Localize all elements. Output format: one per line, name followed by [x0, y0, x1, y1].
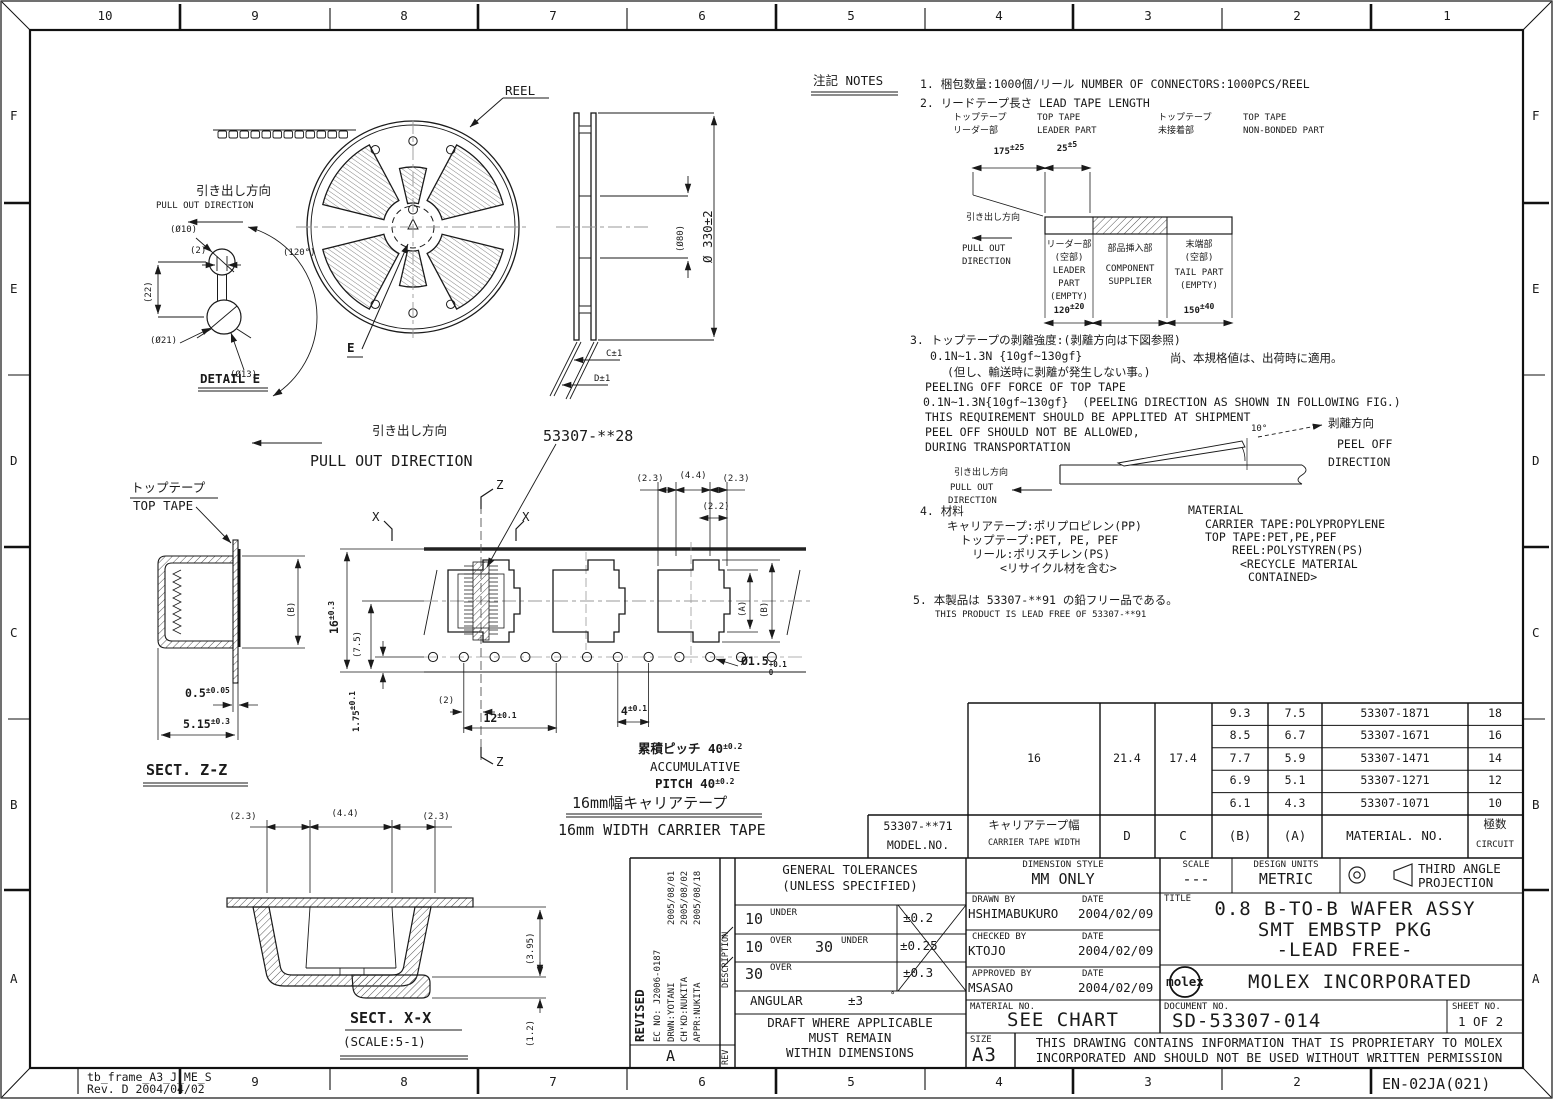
note2-toptape-en: TOP TAPE: [1037, 113, 1080, 123]
document-no-value: SD-53307-014: [1172, 1011, 1321, 1033]
frame-code: EN-02JA(021): [1382, 1076, 1490, 1093]
tail-col-jp2: (空部): [1185, 253, 1214, 263]
dim-16: 16±0.3: [328, 601, 341, 634]
proprietary-line1: THIS DRAWING CONTAINS INFORMATION THAT I…: [1036, 1036, 1503, 1050]
pull-out: PULL OUT: [962, 244, 1005, 254]
dim-2-3: (2.3): [422, 812, 449, 822]
leader-col-en: LEADER: [1053, 266, 1086, 276]
note-4-e3: REEL:POLYSTYREN(PS): [1232, 544, 1364, 557]
pull-direction-jp: 引き出し方向: [196, 184, 271, 198]
tol-r3-num: 30: [745, 966, 763, 983]
grid-col-label: 5: [847, 1075, 855, 1089]
table-cell-b: 6.9: [1230, 774, 1251, 787]
top-tape-en: TOP TAPE: [133, 499, 193, 513]
dim-1-75: 1.75±0.1: [352, 691, 362, 732]
note-3g: THIS REQUIREMENT SHOULD BE APPLITED AT S…: [925, 411, 1250, 424]
tape-pockets-strip: [218, 131, 348, 138]
dim-style-label: DIMENSION STYLE: [1022, 860, 1103, 870]
grid-col-label: 8: [400, 1075, 408, 1089]
tol-draft3: WITHIN DIMENSIONS: [786, 1046, 914, 1060]
note2-toptape2-en: TOP TAPE: [1243, 113, 1286, 123]
dim-22: (22): [144, 281, 154, 303]
dim-1-2: (1.2): [526, 1020, 536, 1047]
checked-by-value: KTOJO: [968, 944, 1006, 958]
peel-direction-jp: 剥離方向: [1328, 417, 1374, 430]
tol-r2-num1: 10: [745, 939, 763, 956]
leader-col-en3: (EMPTY): [1050, 292, 1088, 302]
revision-date: 2005/08/01: [667, 871, 677, 925]
direction: DIRECTION: [962, 257, 1011, 267]
note-4: 4. 材料: [920, 505, 964, 518]
dim-330: Ø 330±2: [701, 210, 715, 263]
table-cell-a: 7.5: [1285, 707, 1306, 720]
note2-leader-en: LEADER PART: [1037, 126, 1097, 136]
table-cell-a: 6.7: [1285, 729, 1306, 742]
dim-80: (Ø80): [676, 225, 686, 252]
sect-zz-view: [130, 498, 305, 786]
grid-col-label: 2: [1293, 1075, 1301, 1089]
note-3d: (但し、輸送時に剥離が発生しない事。): [947, 366, 1151, 379]
table-cell-b: 6.1: [1230, 797, 1251, 810]
part-number-callout: 53307-**28: [543, 428, 633, 445]
grid-row-label: D: [10, 454, 18, 468]
dim-d1: D±1: [594, 374, 610, 384]
table-cell-d: 21.4: [1113, 752, 1141, 765]
pull-direction-jp: 引き出し方向: [372, 424, 447, 438]
note2-toptape-jp: トップテープ: [953, 113, 1006, 123]
grid-col-label: 4: [995, 1075, 1003, 1089]
revision-drwn: DRWN:YOTANI: [667, 982, 677, 1042]
table-cell-circuit: 10: [1488, 797, 1502, 810]
dim-style-value: MM ONLY: [1031, 871, 1094, 888]
table-cell-a: 4.3: [1285, 797, 1306, 810]
checked-date: 2004/02/09: [1078, 944, 1153, 958]
pull-out: PULL OUT: [950, 483, 993, 493]
table-cell-circuit: 18: [1488, 707, 1502, 720]
reel-label: REEL: [505, 84, 535, 98]
note-4-m3: リール:ポリスチレン(PS): [972, 548, 1110, 561]
dim-d21: (Ø21): [150, 336, 177, 346]
table-cell-b: 7.7: [1230, 752, 1251, 765]
grid-col-label: 6: [698, 9, 706, 23]
grid-row-label: F: [1532, 109, 1540, 123]
note2-nonbonded-jp: 未接着部: [1158, 126, 1194, 136]
dim-12: 12±0.1: [483, 712, 516, 725]
accumulative-en2: PITCH 40±0.2: [655, 777, 734, 791]
tolerance-title1: GENERAL TOLERANCES: [782, 863, 917, 877]
accumulative-pitch-jp: 累積ピッチ 40±0.2: [638, 742, 742, 756]
detail-e-title: DETAIL E: [200, 372, 260, 386]
dim-c1: C±1: [606, 349, 622, 359]
tail-col-jp: 末端部: [1185, 240, 1212, 250]
grid-col-label: 8: [400, 9, 408, 23]
table-header-width-en: CARRIER TAPE WIDTH: [988, 839, 1080, 849]
scale-label: SCALE: [1182, 860, 1209, 870]
grid-row-label: C: [1532, 626, 1540, 640]
table-header-a: (A): [1284, 829, 1307, 843]
grid-row-label: C: [10, 626, 18, 640]
note-4-e5: CONTAINED>: [1248, 571, 1317, 584]
approved-by-value: MSASAO: [968, 981, 1013, 995]
leader-col-jp2: (空部): [1055, 253, 1084, 263]
dim-2: (2): [438, 696, 454, 706]
table-cell-b: 9.3: [1230, 707, 1251, 720]
sheet-no-label: SHEET NO.: [1452, 1002, 1501, 1012]
note-3e: PEELING OFF FORCE OF TOP TAPE: [925, 381, 1126, 394]
revision-ec-no: EC NO: J2006-0187: [653, 950, 663, 1042]
dim-5-15: 5.15±0.3: [183, 718, 230, 731]
sect-xx-title: SECT. X-X: [350, 1010, 431, 1027]
section-e-label: E: [347, 341, 355, 355]
grid-col-label: 1: [1443, 9, 1451, 23]
molex-logo-text: molex: [1166, 975, 1204, 989]
tol-r2-cond1: OVER: [770, 936, 792, 946]
dim-2-2: (2.2): [702, 502, 729, 512]
revision-appr: APPR:NUKITA: [693, 982, 703, 1042]
grid-row-label: E: [10, 282, 18, 296]
dim-A: (A): [738, 601, 748, 617]
table-header-d: D: [1123, 829, 1131, 843]
revision-date: 2005/08/18: [693, 871, 703, 925]
revision-date: 2005/08/02: [680, 871, 690, 925]
dim-d10: (Ø10): [170, 225, 197, 235]
dim-4: 4±0.1: [621, 705, 647, 718]
grid-col-label: 7: [549, 1075, 557, 1089]
drawing-title-line3: -LEAD FREE-: [1277, 940, 1414, 962]
size-value: A3: [972, 1045, 997, 1067]
grid-row-label: A: [10, 972, 18, 986]
reel-front-view: [213, 98, 549, 357]
table-cell-material: 53307-1071: [1360, 797, 1429, 810]
section-x-label: X: [522, 510, 530, 524]
tol-r2-num2: 30: [815, 939, 833, 956]
tol-r3-val: ±0.3: [903, 966, 933, 980]
checked-by-label: CHECKED BY: [972, 932, 1026, 942]
dim-0-5: 0.5±0.05: [185, 687, 230, 700]
tail-col-en2: (EMPTY): [1180, 281, 1218, 291]
dim-7-5: (7.5): [353, 631, 363, 658]
table-header-c: C: [1179, 829, 1187, 843]
note2-nonbonded-en: NON-BONDED PART: [1243, 126, 1324, 136]
tol-angular: ANGULAR: [750, 994, 803, 1008]
tol-r1-num: 10: [745, 911, 763, 928]
table-cell-material: 53307-1671: [1360, 729, 1429, 742]
grid-col-label: 10: [97, 9, 112, 23]
table-header-material: MATERIAL. NO.: [1346, 829, 1444, 843]
approved-by-label: APPROVED BY: [972, 969, 1032, 979]
drawn-by-value: HSHIMABUKURO: [968, 907, 1058, 921]
table-header-modelno: MODEL.NO.: [887, 839, 949, 852]
section-z-label: Z: [496, 755, 504, 769]
dim-25: 25±5: [1057, 144, 1077, 154]
projection-label2: PROJECTION: [1418, 876, 1493, 890]
note-3h: PEEL OFF SHOULD NOT BE ALLOWED,: [925, 426, 1140, 439]
table-cell-a: 5.1: [1285, 774, 1306, 787]
note-2: 2. リードテープ長さ LEAD TAPE LENGTH: [920, 97, 1150, 110]
drawing-title-line1: 0.8 B-TO-B WAFER ASSY: [1214, 899, 1475, 921]
drawn-by-label: DRAWN BY: [972, 895, 1015, 905]
tol-r3-cond: OVER: [770, 963, 792, 973]
note2-leader-jp: リーダー部: [953, 126, 998, 136]
table-header-circuit-en: CIRCUIT: [1476, 840, 1514, 850]
proprietary-line2: INCORPORATED AND SHOULD NOT BE USED WITH…: [1036, 1051, 1503, 1065]
component-col-en: COMPONENT: [1106, 264, 1155, 274]
note-1: 1. 梱包数量:1000個/リール NUMBER OF CONNECTORS:1…: [920, 78, 1310, 91]
table-header-model: 53307-**71: [883, 820, 952, 833]
tol-angular-val: ±3: [848, 994, 863, 1008]
grid-col-label: 6: [698, 1075, 706, 1089]
sect-zz-title: SECT. Z-Z: [146, 762, 227, 779]
sheet-no-value: 1 OF 2: [1458, 1015, 1503, 1029]
table-cell-width: 16: [1027, 752, 1041, 765]
note-5a: 5. 本製品は 53307-**91 の鉛フリー品である。: [913, 594, 1178, 607]
peel-direction-en: DIRECTION: [1328, 456, 1390, 469]
date-label: DATE: [1082, 969, 1104, 979]
grid-col-label: 3: [1144, 1075, 1152, 1089]
grid-row-label: E: [1532, 282, 1540, 296]
grid-row-label: B: [1532, 798, 1540, 812]
table-header-width-jp: キャリアテープ幅: [988, 819, 1079, 832]
component-col-jp: 部品挿入部: [1107, 244, 1152, 254]
table-header-circuit-jp: 極数: [1484, 818, 1507, 831]
tol-r2-cond2: UNDER: [841, 936, 868, 946]
pull-direction-jp: 引き出し方向: [954, 468, 1008, 478]
third-angle-icon: [1349, 864, 1412, 886]
date-label: DATE: [1082, 895, 1104, 905]
note-3f: 0.1N~1.3N{10gf~130gf} (PEELING DIRECTION…: [923, 396, 1401, 409]
grid-col-label: 2: [1293, 9, 1301, 23]
tol-draft1: DRAFT WHERE APPLICABLE: [767, 1016, 933, 1030]
tape-width-en: 16mm WIDTH CARRIER TAPE: [558, 822, 766, 839]
peel-off: PEEL OFF: [1337, 438, 1392, 451]
note-4-m1: キャリアテープ:ポリプロピレン(PP): [947, 520, 1142, 533]
grid-col-label: 9: [251, 9, 259, 23]
revision-letter: A: [666, 1048, 675, 1065]
note-5b: THIS PRODUCT IS LEAD FREE OF 53307-**91: [935, 610, 1146, 620]
table-cell-circuit: 14: [1488, 752, 1502, 765]
note-3i: DURING TRANSPORTATION: [925, 441, 1070, 454]
grid-col-label: 9: [251, 1075, 259, 1089]
revision-rev-label: REV: [722, 1050, 732, 1065]
dim-120: 120±20: [1054, 306, 1085, 316]
grid-row-label: F: [10, 109, 18, 123]
dim-B: (B): [760, 602, 770, 618]
revision-revised: REVISED: [633, 989, 647, 1042]
sect-xx-scale: (SCALE:5-1): [343, 1035, 426, 1049]
tol-angular-unit: °: [890, 991, 895, 1001]
tol-r1-cond: UNDER: [770, 908, 797, 918]
drawing-sheet: 10 9 8 7 6 5 4 3 2 1 9 8 7 6 5 4 3 2 F E…: [0, 0, 1553, 1099]
table-cell-material: 53307-1471: [1360, 752, 1429, 765]
grid-row-label: B: [10, 798, 18, 812]
table-cell-material: 53307-1271: [1360, 774, 1429, 787]
top-tape-jp: トップテープ: [131, 481, 205, 495]
tolerance-title2: (UNLESS SPECIFIED): [782, 879, 917, 893]
grid-col-label: 3: [1144, 9, 1152, 23]
table-header-b: (B): [1229, 829, 1252, 843]
tol-r1-val: ±0.2: [903, 911, 933, 925]
pull-direction-jp: 引き出し方向: [966, 213, 1020, 223]
table-cell-b: 8.5: [1230, 729, 1251, 742]
revision-description: DESCRIPTION: [722, 932, 732, 988]
table-cell-c: 17.4: [1169, 752, 1197, 765]
frame-stamp-rev: Rev. D 2004/04/02: [87, 1083, 205, 1096]
accumulative-en1: ACCUMULATIVE: [650, 760, 740, 774]
dim-4-4: (4.4): [679, 471, 706, 481]
note-3c: 尚、本規格値は、出荷時に適用。: [1170, 352, 1343, 365]
tail-col-en: TAIL PART: [1175, 268, 1224, 278]
grid-col-label: 7: [549, 9, 557, 23]
drawn-date: 2004/02/09: [1078, 907, 1153, 921]
dim-2-3: (2.3): [229, 812, 256, 822]
table-cell-circuit: 12: [1488, 774, 1502, 787]
title-label: TITLE: [1164, 894, 1191, 904]
reel-side-view: [550, 113, 714, 399]
pull-direction-en: PULL OUT DIRECTION: [310, 453, 473, 470]
note-3b: 0.1N~1.3N {10gf~130gf}: [930, 350, 1082, 363]
tol-r2-val: ±0.25: [900, 939, 938, 953]
pull-direction-en: PULL OUT DIRECTION: [156, 201, 254, 211]
note2-toptape2-jp: トップテープ: [1158, 113, 1211, 123]
design-units-label: DESIGN UNITS: [1253, 860, 1318, 870]
date-label: DATE: [1082, 932, 1104, 942]
dim-B: (B): [287, 602, 297, 618]
company-name: MOLEX INCORPORATED: [1248, 972, 1472, 994]
grid-col-label: 4: [995, 9, 1003, 23]
dim-10deg: 10°: [1251, 424, 1267, 434]
component-col-en2: SUPPLIER: [1108, 277, 1151, 287]
dim-2-3: (2.3): [636, 474, 663, 484]
grid-col-label: 5: [847, 9, 855, 23]
dim-2: (2): [190, 246, 206, 256]
dim-120deg: (120°): [283, 248, 316, 258]
leader-col-en2: PART: [1058, 279, 1080, 289]
note-3a: 3. トップテープの剥離強度:(剥離方向は下図参照): [910, 334, 1181, 347]
dim-3-95: (3.95): [526, 932, 536, 965]
note-4-m2: トップテープ:PET, PE, PEF: [960, 534, 1118, 547]
table-cell-material: 53307-1871: [1360, 707, 1429, 720]
leader-col-jp: リーダー部: [1046, 240, 1091, 250]
grid-row-label: D: [1532, 454, 1540, 468]
scale-value: ---: [1182, 871, 1209, 888]
dim-2-3: (2.3): [722, 474, 749, 484]
table-cell-a: 5.9: [1285, 752, 1306, 765]
revision-chkd: CH'KD:NUKITA: [680, 977, 690, 1042]
grid-row-label: A: [1532, 972, 1540, 986]
tol-draft2: MUST REMAIN: [809, 1031, 892, 1045]
note-4-material: MATERIAL: [1188, 504, 1243, 517]
section-x-label: X: [372, 510, 380, 524]
section-z-label: Z: [496, 478, 504, 492]
tape-width-jp: 16mm幅キャリアテープ: [572, 795, 727, 812]
note-4-m4: <リサイクル材を含む>: [1000, 562, 1117, 575]
material-no-value: SEE CHART: [1007, 1010, 1119, 1032]
design-units-value: METRIC: [1259, 871, 1313, 888]
table-cell-circuit: 16: [1488, 729, 1502, 742]
notes-title: 注記 NOTES: [813, 74, 883, 88]
dim-175: 175±25: [994, 147, 1025, 157]
dim-150: 150±40: [1184, 306, 1215, 316]
dim-4-4: (4.4): [331, 809, 358, 819]
dim-hole: Ø1.5+0.10: [741, 655, 787, 676]
approved-date: 2004/02/09: [1078, 981, 1153, 995]
